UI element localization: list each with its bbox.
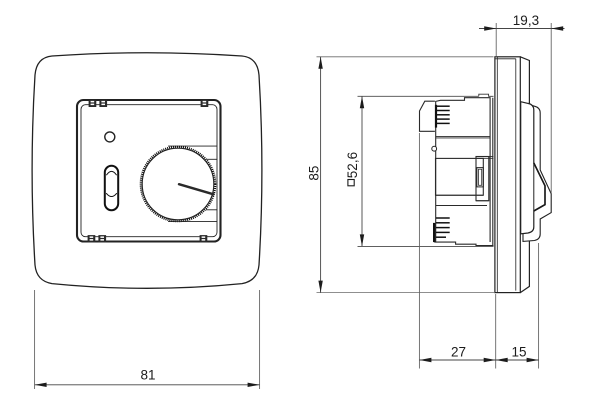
svg-text:15: 15 <box>512 345 527 360</box>
svg-text:81: 81 <box>141 368 156 383</box>
svg-text:52,6: 52,6 <box>345 152 360 178</box>
svg-text:27: 27 <box>451 345 466 360</box>
svg-text:19,3: 19,3 <box>513 13 539 28</box>
svg-text:85: 85 <box>307 166 322 181</box>
